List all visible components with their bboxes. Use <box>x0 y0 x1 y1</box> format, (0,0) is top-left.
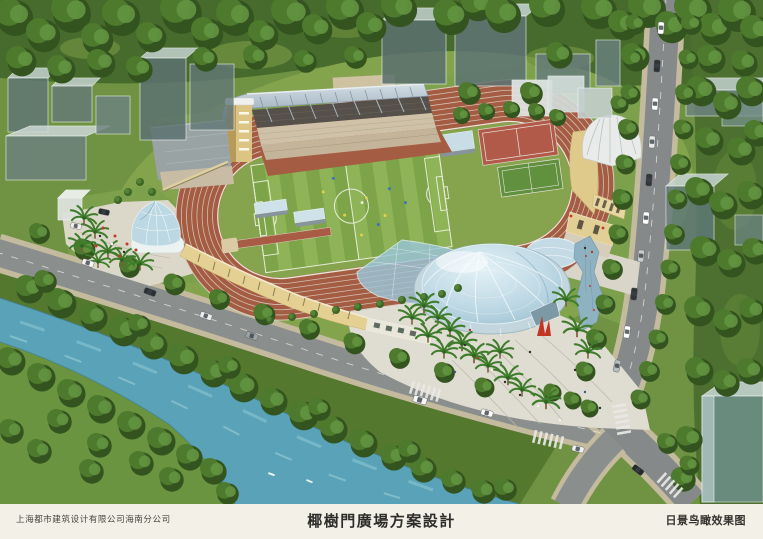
building-block <box>702 382 763 502</box>
view-type-label: 日景鸟瞰效果图 <box>666 512 747 528</box>
presentation-board: 上海都市建筑设计有限公司海南分公司 椰樹門廣場方案設計 日景鸟瞰效果图 <box>0 0 763 539</box>
project-title: 椰樹門廣場方案設計 <box>0 510 763 531</box>
building-block <box>96 96 130 134</box>
aerial-rendering <box>0 0 763 504</box>
building-block <box>596 40 620 86</box>
building-block <box>190 64 234 130</box>
title-block: 上海都市建筑设计有限公司海南分公司 椰樹門廣場方案設計 日景鸟瞰效果图 <box>0 504 763 539</box>
